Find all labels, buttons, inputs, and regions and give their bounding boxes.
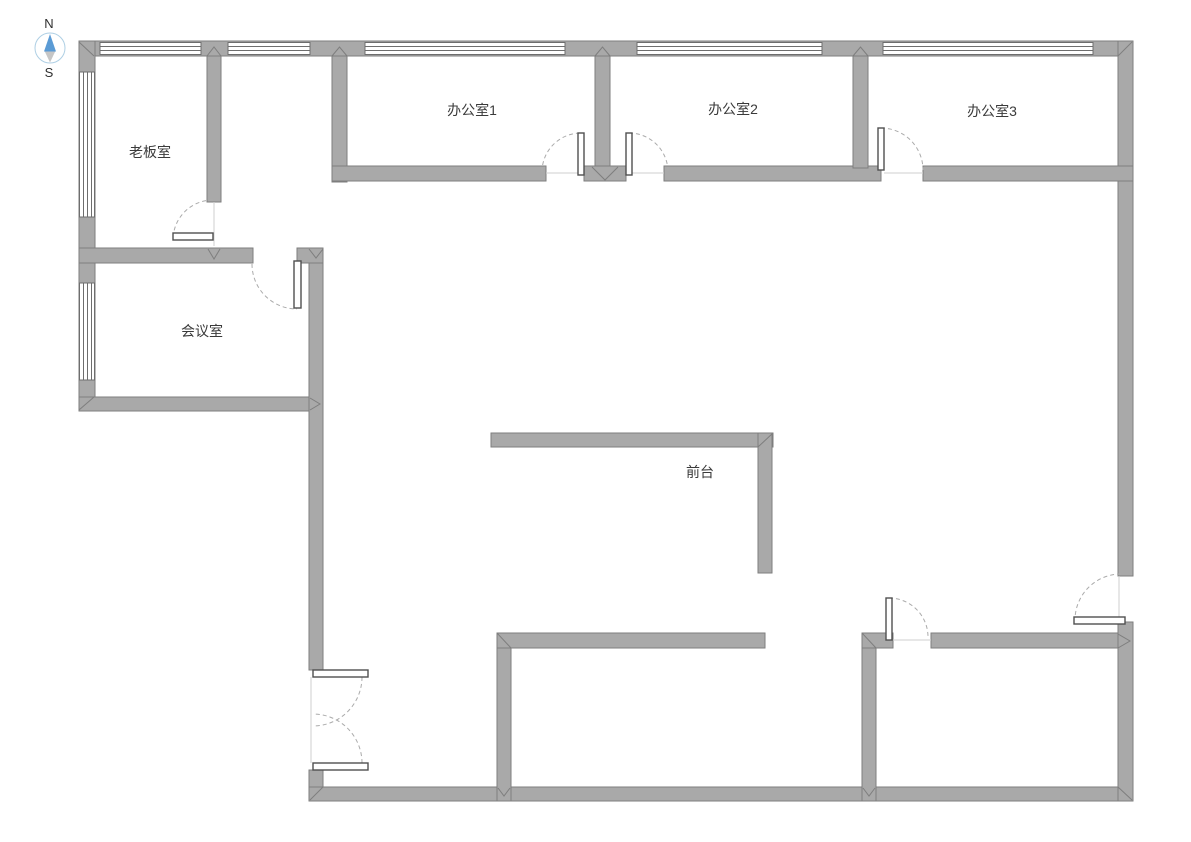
- wall-reception-top: [491, 433, 773, 447]
- wall-bottomright-room-left: [862, 633, 876, 801]
- room-label-office-2: 办公室2: [708, 101, 758, 117]
- double-door-bottom-panel: [313, 763, 368, 770]
- room-label-office-3: 办公室3: [967, 103, 1017, 119]
- wall-reception-right: [758, 433, 772, 573]
- compass-needle-south-icon: [45, 52, 55, 63]
- office1-door-arc: [542, 133, 581, 172]
- bottomright-room-door-arc: [889, 598, 928, 637]
- room-label-office-1: 办公室1: [447, 102, 497, 118]
- windows: [80, 43, 1094, 381]
- meeting-room-door-arc: [252, 264, 297, 309]
- walls: [79, 41, 1133, 801]
- wall-midroom-left: [497, 633, 511, 801]
- compass-needle-north-icon: [44, 34, 56, 52]
- wall-office3-bottom: [923, 166, 1133, 181]
- bottomright-room-door-panel: [886, 598, 892, 640]
- office2-door-panel: [626, 133, 632, 175]
- meeting-room-door-panel: [294, 261, 301, 308]
- window-top-boss: [100, 43, 201, 55]
- wall-bottom: [309, 787, 1133, 801]
- entry-door-panel: [1074, 617, 1125, 624]
- floor-plan-canvas: N S: [0, 0, 1191, 842]
- compass-south-label: S: [45, 65, 54, 80]
- wall-office2-office3-divider: [853, 56, 868, 168]
- wall-office1-bottom: [332, 166, 546, 181]
- wall-meeting-bottom: [79, 397, 323, 411]
- office1-door-panel: [578, 133, 584, 175]
- window-top-office3: [883, 43, 1093, 55]
- double-door-top-arc: [313, 677, 362, 726]
- window-left-meeting: [80, 283, 95, 380]
- window-top-office2: [637, 43, 822, 55]
- office2-door-arc: [629, 133, 668, 172]
- compass-north-label: N: [44, 16, 53, 31]
- wall-office1-office2-divider: [595, 56, 610, 168]
- window-top-office1: [365, 43, 565, 55]
- wall-boss-bottom: [79, 248, 253, 263]
- wall-right-lower: [1118, 622, 1133, 801]
- wall-office2-bottom: [664, 166, 881, 181]
- wall-midroom-top: [497, 633, 765, 648]
- room-label-reception: 前台: [686, 464, 714, 480]
- wall-left-mid: [309, 248, 323, 670]
- wall-right-upper: [1118, 41, 1133, 576]
- double-door-bottom-arc: [313, 714, 362, 763]
- room-label-meeting-room: 会议室: [181, 323, 223, 339]
- wall-office1-left: [332, 56, 347, 182]
- wall-boss-right: [207, 56, 221, 202]
- compass: N S: [35, 16, 65, 80]
- room-label-boss-office: 老板室: [129, 144, 171, 160]
- boss-office-door-panel: [173, 233, 213, 240]
- entry-door-arc: [1075, 574, 1121, 620]
- floor-plan-svg: N S: [0, 0, 1191, 842]
- window-left-boss: [80, 72, 95, 217]
- wall-bottomright-room-top: [931, 633, 1118, 648]
- wall-center-door-block: [584, 166, 626, 181]
- window-top-corridor: [228, 43, 310, 55]
- office3-door-arc: [881, 128, 923, 170]
- office3-door-panel: [878, 128, 884, 170]
- double-door-top-panel: [313, 670, 368, 677]
